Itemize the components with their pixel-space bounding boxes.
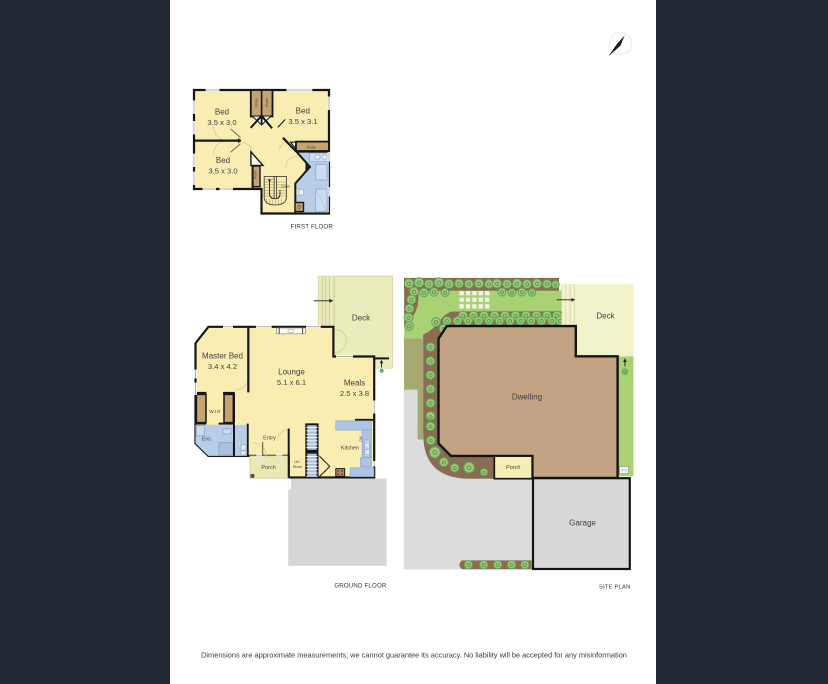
svg-text:Meals: Meals (344, 379, 365, 388)
svg-text:SITE PLAN: SITE PLAN (599, 585, 630, 591)
svg-text:Porch: Porch (261, 465, 275, 471)
svg-text:3.5 x 3.0: 3.5 x 3.0 (208, 167, 237, 176)
svg-text:5.1 x 6.1: 5.1 x 6.1 (277, 378, 306, 387)
svg-text:GROUND FLOOR: GROUND FLOOR (334, 583, 387, 590)
svg-text:W.I.R: W.I.R (209, 409, 221, 414)
svg-text:Ens.: Ens. (202, 437, 212, 443)
svg-text:FIRST FLOOR: FIRST FLOOR (291, 224, 334, 231)
svg-text:Dwelling: Dwelling (512, 393, 542, 402)
svg-text:2.5 x 3.8: 2.5 x 3.8 (340, 389, 369, 398)
svg-text:Deck: Deck (596, 312, 615, 321)
svg-text:Robe: Robe (265, 98, 269, 107)
svg-text:Lounge: Lounge (278, 368, 305, 377)
svg-text:Store: Store (293, 464, 302, 469)
svg-text:DW: DW (359, 436, 363, 441)
svg-text:Kitchen: Kitchen (341, 446, 359, 452)
svg-text:Porch: Porch (506, 465, 520, 471)
svg-text:Deck: Deck (352, 314, 371, 323)
svg-text:3.4 x 4.2: 3.4 x 4.2 (208, 362, 237, 371)
svg-text:Bed: Bed (296, 107, 310, 116)
svg-text:Dimensions are approximate mea: Dimensions are approximate measurements;… (201, 651, 627, 660)
svg-text:Robe: Robe (253, 170, 257, 178)
svg-text:Entry: Entry (263, 436, 276, 442)
svg-text:Bed: Bed (216, 156, 230, 165)
svg-text:Robe: Robe (307, 146, 316, 150)
svg-text:Down: Down (281, 184, 290, 188)
svg-text:Garage: Garage (569, 519, 596, 528)
svg-text:Master Bed: Master Bed (202, 352, 243, 361)
svg-text:3.5 x 3.1: 3.5 x 3.1 (288, 117, 317, 126)
svg-text:Robe: Robe (254, 98, 258, 107)
svg-text:3.5 x 3.0: 3.5 x 3.0 (207, 118, 236, 127)
svg-text:Bed: Bed (215, 108, 229, 117)
